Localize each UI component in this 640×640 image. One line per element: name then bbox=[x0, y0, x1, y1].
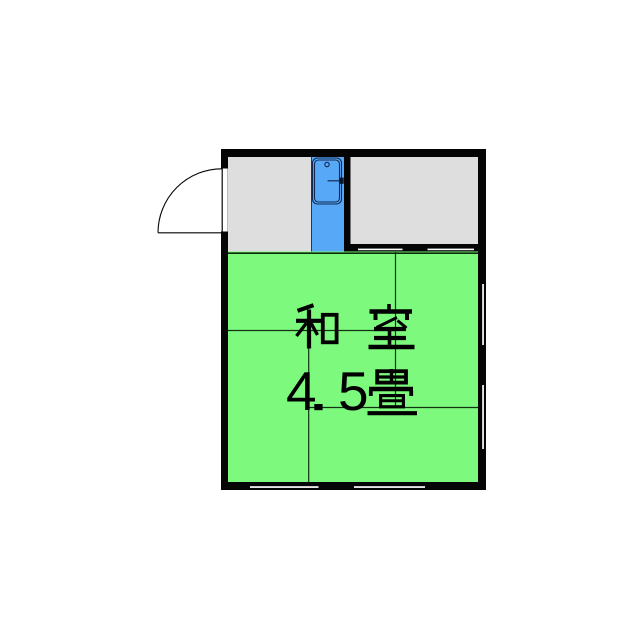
svg-text:5: 5 bbox=[338, 360, 369, 422]
svg-text:4: 4 bbox=[286, 360, 317, 422]
